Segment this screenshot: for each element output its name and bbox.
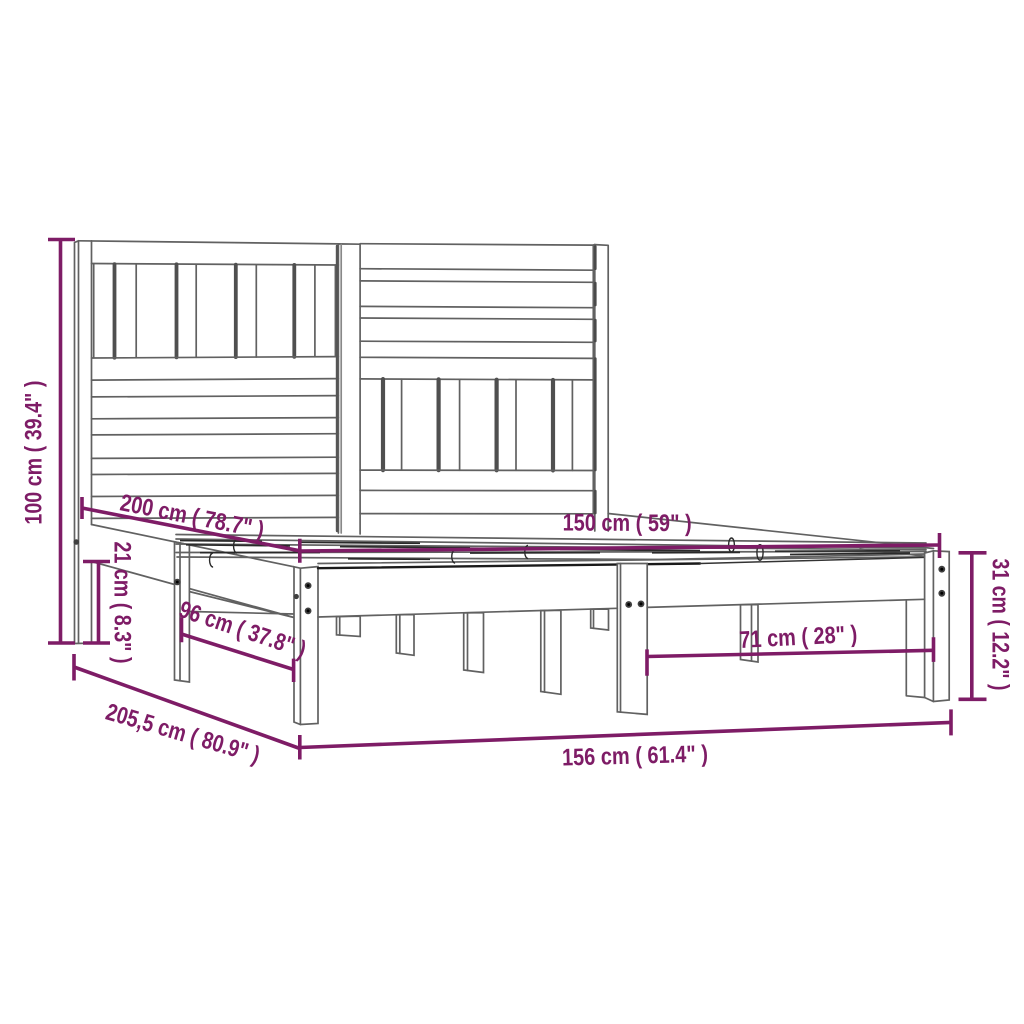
svg-text:100 cm ( 39.4" ): 100 cm ( 39.4" ) (21, 381, 48, 525)
svg-text:21 cm ( 8.3" ): 21 cm ( 8.3" ) (109, 542, 136, 664)
svg-text:156 cm ( 61.4" ): 156 cm ( 61.4" ) (562, 741, 709, 772)
svg-text:31 cm ( 12.2" ): 31 cm ( 12.2" ) (987, 559, 1014, 691)
svg-text:150 cm ( 59" ): 150 cm ( 59" ) (563, 510, 692, 538)
